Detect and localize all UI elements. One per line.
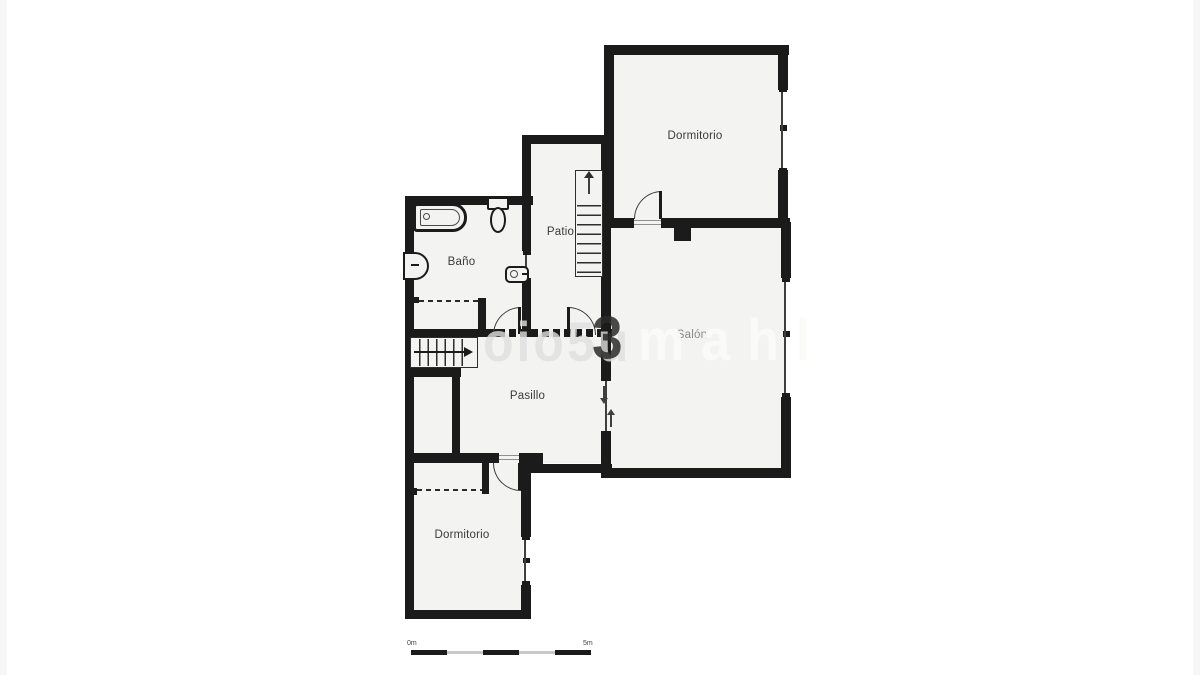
window-cap [779,168,787,172]
wall-segment [524,135,609,144]
door-leaf [518,307,521,334]
door-threshold [499,459,519,460]
wall-segment [405,610,531,619]
wall-segment [478,298,486,337]
closet-dashed-line [417,489,482,491]
window-icon [784,282,786,393]
door-leaf [659,191,662,219]
wall-segment [452,368,460,460]
room-label-pasillo: Pasillo [490,390,565,402]
bidet-tap [411,264,419,266]
room-label-patio: Patio [533,226,588,238]
pillar [674,228,691,241]
scale-bar-segment [483,650,519,655]
sink-tap [522,273,529,275]
wall-segment [781,222,791,278]
floor-plan: Dormitorio Patio Baño Salón Pasillo Dorm… [0,0,1200,675]
opening-line [605,381,607,431]
scale-bar-segment [411,650,447,655]
window-cap [522,581,530,585]
living-room-floor [607,222,785,472]
wall-segment [778,45,788,90]
scale-bar-segment [555,650,591,655]
arrow-up-icon [610,414,612,427]
opening-cap [601,431,611,436]
stairs-direction-arrow [588,176,590,194]
sink-basin [510,270,518,278]
wall-segment [522,282,531,337]
stairs-direction-arrow [584,171,594,178]
right-edge-strip [1193,0,1200,675]
arrow-up-icon [607,409,615,415]
door-threshold [634,220,661,221]
scale-bar-segment [447,651,483,654]
arrow-down-icon [600,398,608,404]
scale-end-label: 5m [583,640,593,647]
stairs-direction-arrow [414,351,466,353]
door-threshold [499,455,519,456]
door-threshold [634,224,661,225]
wall-segment [405,453,493,463]
window-icon [524,540,526,581]
bathtub-drain [423,213,430,220]
room-label-dormitorio-bottom: Dormitorio [417,529,507,541]
wall-segment [521,453,531,537]
wall-segment [522,135,531,251]
scale-bar-segment [519,651,555,654]
toilet-icon [490,207,506,233]
left-edge-strip [0,0,7,675]
door-leaf [567,307,570,334]
wall-segment [604,45,614,222]
scale-start-label: 0m [407,640,417,647]
wall-segment [778,170,788,222]
wall-segment [540,464,612,473]
closet-dashed-line [419,300,478,302]
wall-segment [781,397,791,478]
wall-segment [661,218,790,228]
stairs-direction-arrow [464,347,473,357]
window-cap [782,393,790,397]
room-label-dormitorio-top: Dormitorio [650,130,740,142]
window-icon [781,92,783,168]
room-label-salon: Salón [648,329,736,341]
wall-segment [604,45,789,55]
door-leaf [518,463,521,490]
wall-segment [482,458,489,494]
wall-segment [604,468,791,478]
room-label-bano: Baño [434,256,489,268]
